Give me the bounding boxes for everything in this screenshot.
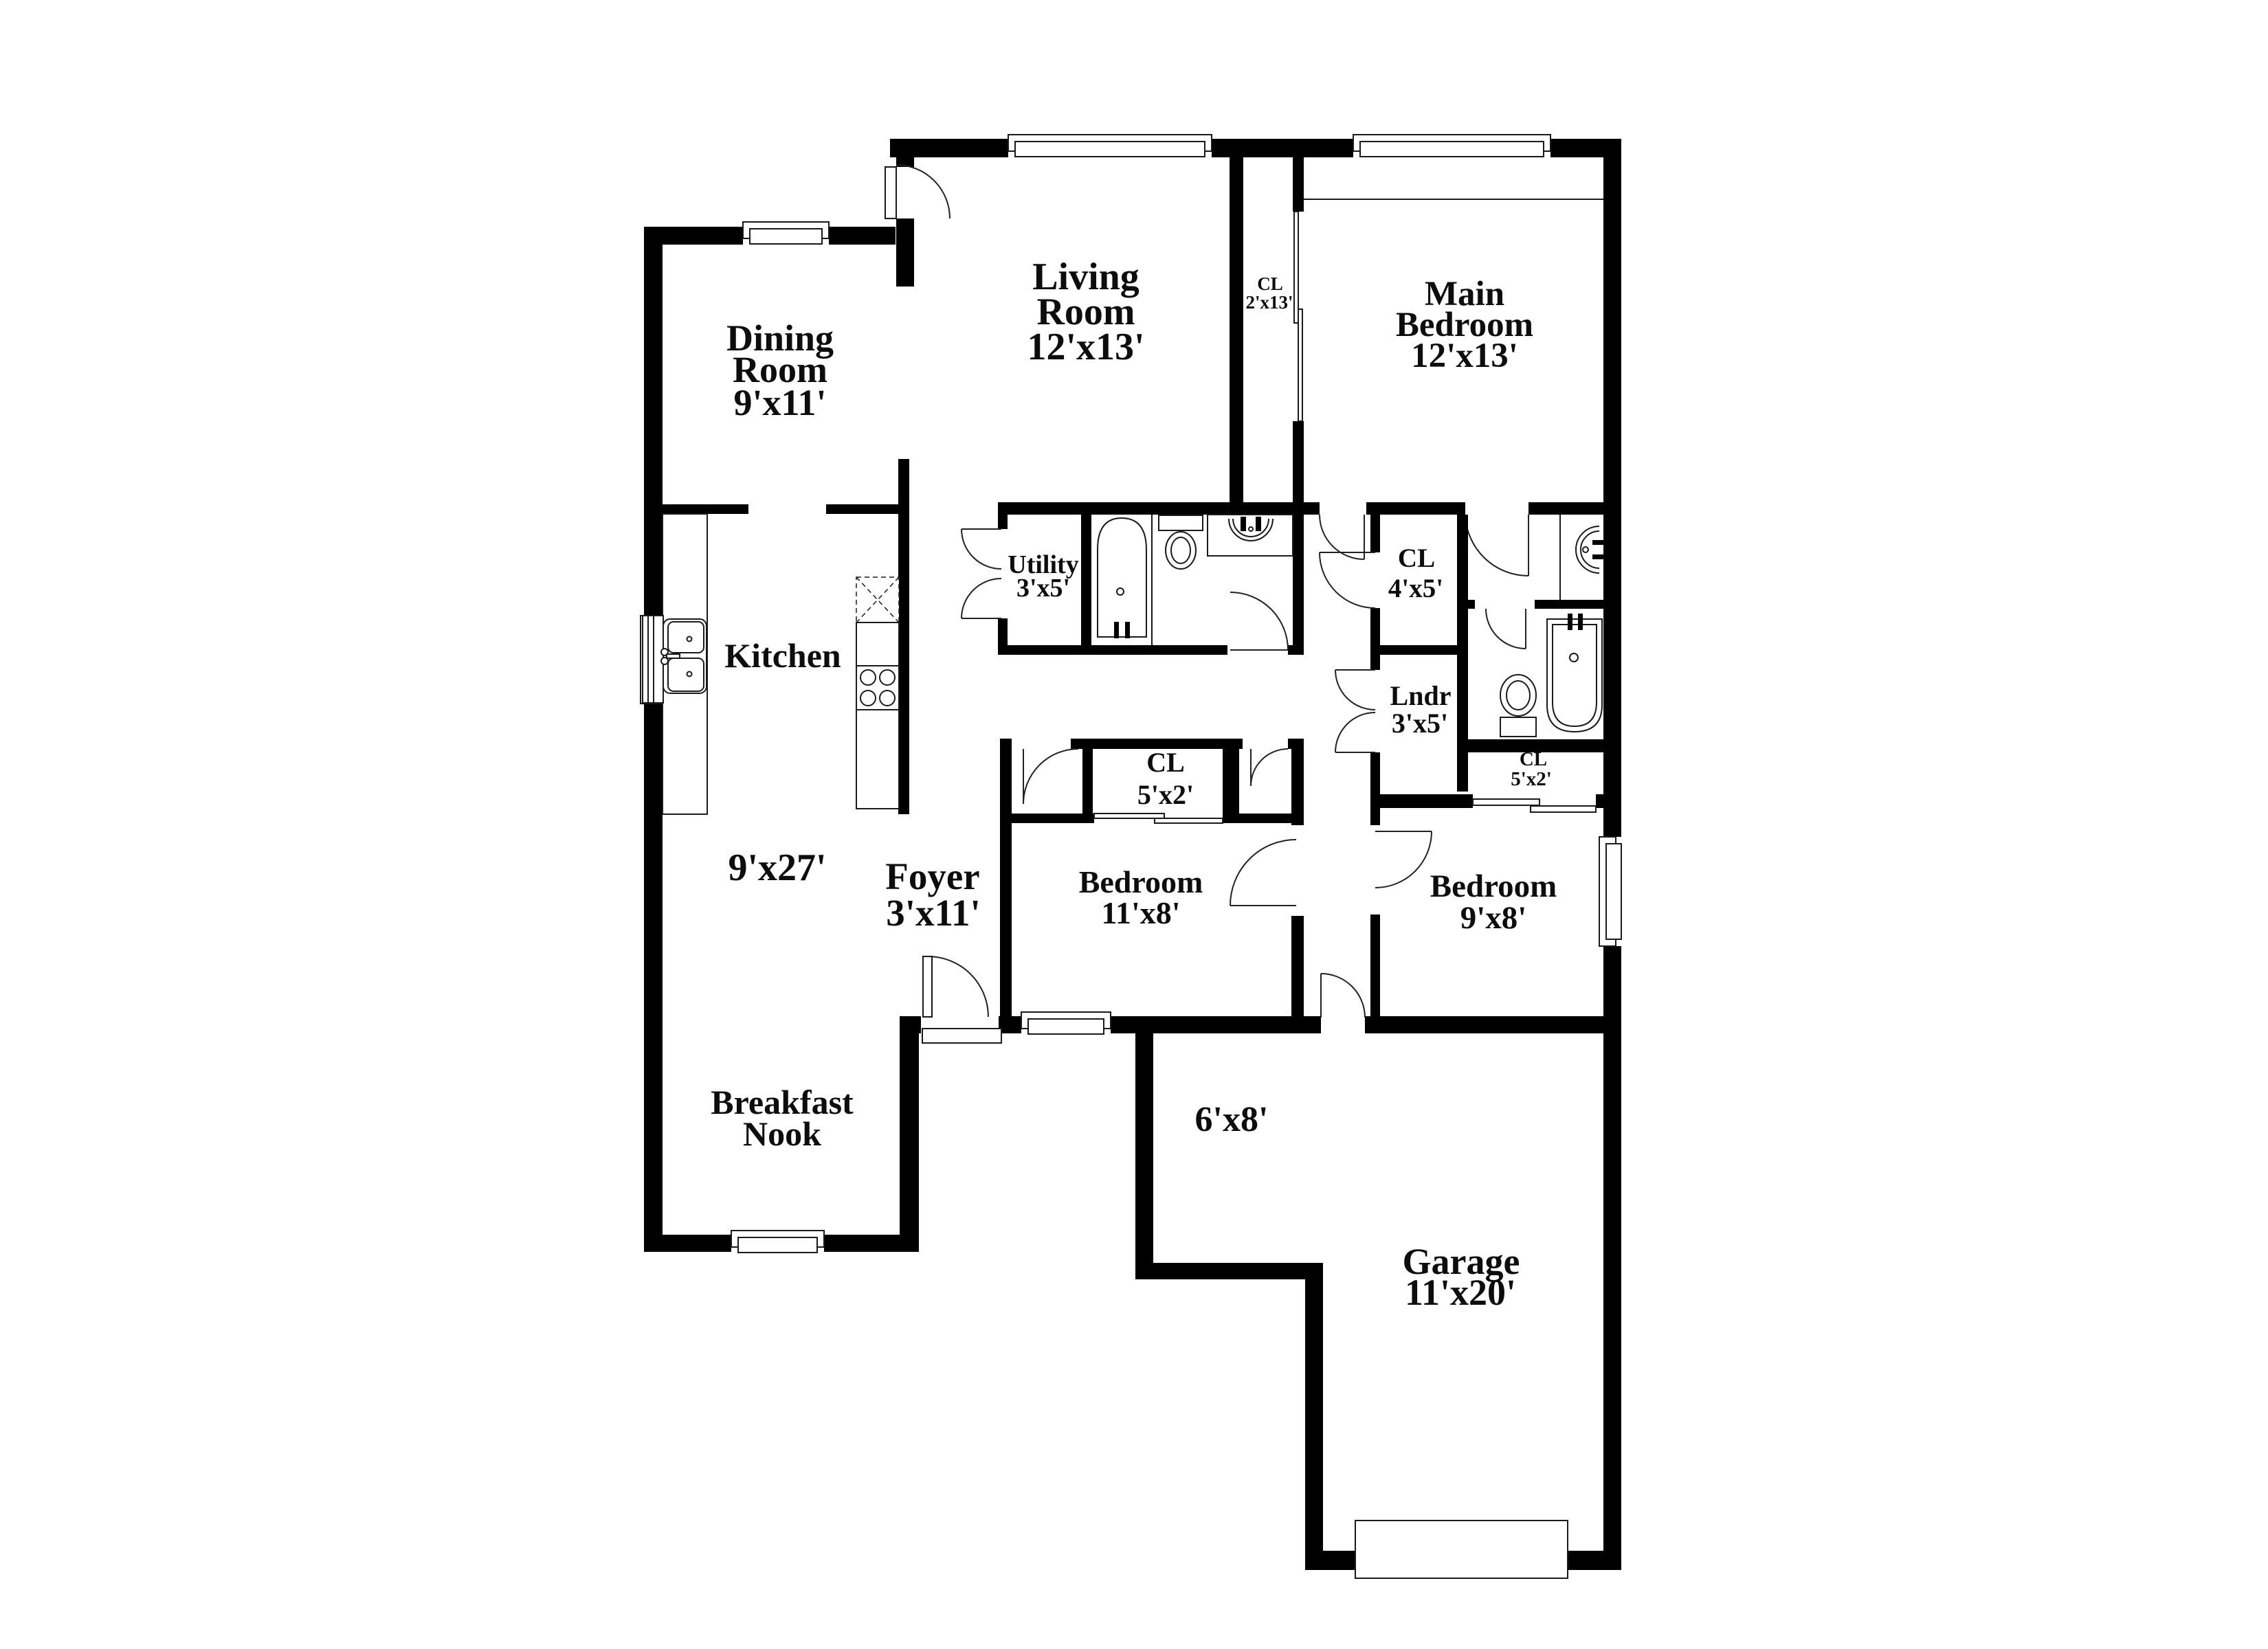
svg-text:12'x13': 12'x13'	[1411, 337, 1518, 375]
svg-text:Nook: Nook	[743, 1114, 821, 1153]
svg-text:6'x8': 6'x8'	[1195, 1100, 1269, 1139]
svg-text:12'x13': 12'x13'	[1027, 326, 1144, 368]
svg-text:CL: CL	[1398, 543, 1435, 573]
svg-text:11'x8': 11'x8'	[1101, 895, 1180, 930]
svg-text:Bedroom: Bedroom	[1079, 864, 1203, 899]
svg-text:5'x2': 5'x2'	[1511, 768, 1552, 790]
svg-text:9'x27': 9'x27'	[728, 846, 826, 889]
svg-text:3'x5': 3'x5'	[1392, 708, 1448, 739]
svg-text:CL: CL	[1257, 273, 1283, 294]
svg-text:CL: CL	[1520, 748, 1547, 770]
svg-text:Foyer: Foyer	[885, 855, 979, 897]
svg-text:Kitchen: Kitchen	[724, 636, 841, 675]
svg-text:Lndr: Lndr	[1390, 680, 1452, 711]
svg-text:9'x11': 9'x11'	[733, 382, 826, 423]
svg-text:4'x5': 4'x5'	[1388, 574, 1443, 603]
svg-text:CL: CL	[1146, 747, 1185, 778]
svg-text:3'x11': 3'x11'	[886, 892, 981, 934]
svg-text:2'x13': 2'x13'	[1245, 292, 1293, 313]
svg-text:Bedroom: Bedroom	[1430, 868, 1557, 904]
svg-text:11'x20': 11'x20'	[1405, 1272, 1516, 1313]
svg-text:5'x2': 5'x2'	[1137, 779, 1194, 810]
svg-text:9'x8': 9'x8'	[1460, 900, 1527, 936]
svg-text:3'x5': 3'x5'	[1016, 574, 1070, 603]
